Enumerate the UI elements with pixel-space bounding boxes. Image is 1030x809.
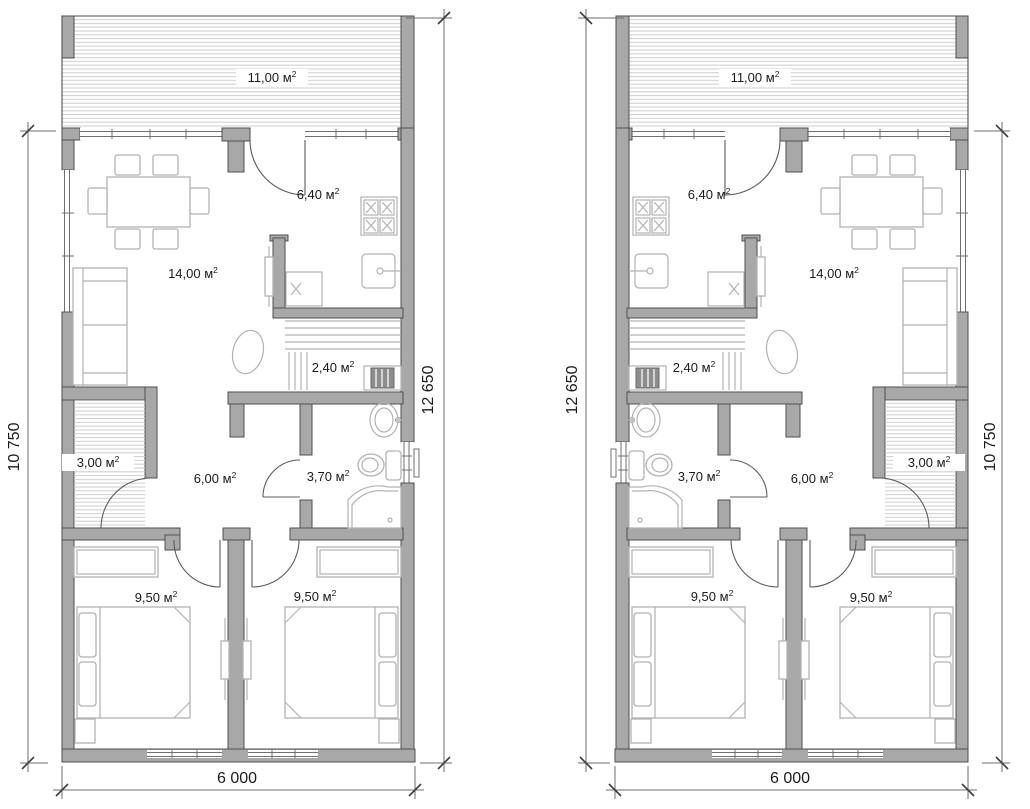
room-label-right-unit-living-room: 14,00 м2 <box>809 265 859 281</box>
room-label-right-unit-kitchen: 6,40 м2 <box>688 186 731 202</box>
room-label-right-unit-closet: 3,00 м2 <box>908 454 951 470</box>
floorplan-left-unit <box>20 9 452 799</box>
dimension-label-right-unit-height-left: 12 650 <box>564 365 581 414</box>
room-label-right-unit-bathroom: 3,70 м2 <box>678 468 721 484</box>
dimension-label-left-unit-height-right: 12 650 <box>420 365 437 414</box>
room-label-right-unit-bedroom-right: 9,50 м2 <box>850 589 893 605</box>
room-label-left-unit-terrace: 11,00 м2 <box>248 69 297 85</box>
room-label-right-unit-bedroom-left: 9,50 м2 <box>691 588 734 604</box>
floorplan-right-unit <box>578 9 1010 799</box>
dimension-label-left-unit-width-bottom: 6 000 <box>217 770 257 787</box>
room-label-right-unit-terrace: 11,00 м2 <box>731 69 780 85</box>
room-label-right-unit-hallway: 6,00 м2 <box>791 470 834 486</box>
room-label-left-unit-bedroom-right: 9,50 м2 <box>294 588 337 604</box>
floor-plan-page: 11,00 м26,40 м214,00 м22,40 м23,00 м26,0… <box>0 0 1030 809</box>
room-label-left-unit-hallway: 6,00 м2 <box>194 470 237 486</box>
room-label-left-unit-bedroom-left: 9,50 м2 <box>135 589 178 605</box>
room-label-left-unit-living-room: 14,00 м2 <box>168 265 218 281</box>
room-label-left-unit-bathroom: 3,70 м2 <box>307 468 350 484</box>
dimension-label-left-unit-height-left: 10 750 <box>6 422 23 471</box>
room-label-left-unit-sauna: 2,40 м2 <box>312 359 355 375</box>
room-label-right-unit-sauna: 2,40 м2 <box>673 359 716 375</box>
room-label-left-unit-closet: 3,00 м2 <box>77 454 120 470</box>
room-label-left-unit-kitchen: 6,40 м2 <box>297 186 340 202</box>
dimension-label-right-unit-height-right: 10 750 <box>982 422 999 471</box>
dimension-label-right-unit-width-bottom: 6 000 <box>770 770 810 787</box>
floor-plan-canvas: 11,00 м26,40 м214,00 м22,40 м23,00 м26,0… <box>0 0 1030 809</box>
